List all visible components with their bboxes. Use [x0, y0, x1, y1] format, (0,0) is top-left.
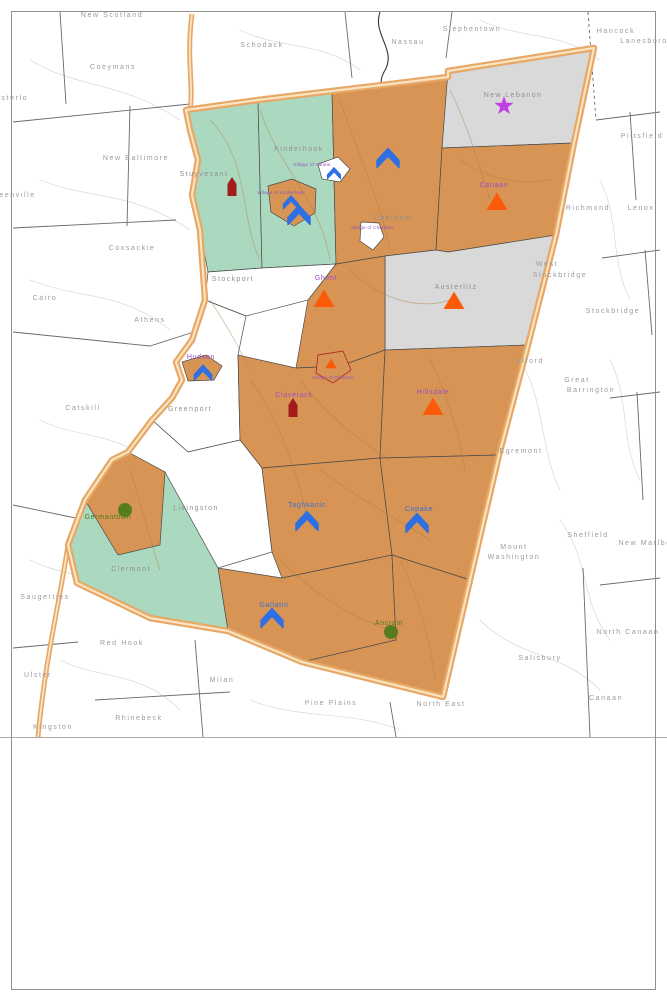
- label-claverack: Claverack: [275, 392, 312, 399]
- label-sheffield: Sheffield: [567, 532, 609, 539]
- label-pine-plains: Pine Plains: [305, 700, 358, 707]
- label-coxsackie: Coxsackie: [109, 245, 156, 252]
- label-greenport: Greenport: [168, 406, 212, 413]
- map-page: New Scotland Schodack Nassau Stephentown…: [0, 0, 667, 1000]
- label-west-stockbridge-2: Stockbridge: [533, 272, 588, 279]
- map-svg: New Scotland Schodack Nassau Stephentown…: [0, 0, 667, 737]
- town-chatham: [332, 77, 448, 264]
- label-chatham: Chatham: [374, 215, 412, 222]
- label-lanesboro: Lanesboro: [620, 38, 667, 45]
- label-great-barrington-2: Barrington: [567, 387, 615, 394]
- label-alford: Alford: [516, 358, 544, 365]
- label-milan: Milan: [210, 677, 235, 684]
- label-stephentown: Stephentown: [443, 26, 501, 33]
- label-copake: Copake: [405, 506, 433, 513]
- label-mount-washington-2: Washington: [488, 554, 541, 561]
- label-egremont: Egremont: [499, 448, 542, 455]
- label-kinderhook: Kinderhook: [274, 146, 323, 153]
- label-red-hook: Red Hook: [100, 640, 144, 647]
- label-ghent: Ghent: [315, 275, 338, 282]
- label-germantown: Germantown: [84, 514, 131, 521]
- label-lenox: Lenox: [627, 205, 654, 212]
- label-canaan: Canaan: [480, 182, 509, 189]
- label-stuyvesant: Stuyvesant: [180, 171, 229, 178]
- label-livingston: Livingston: [173, 505, 219, 512]
- label-new-scotland: New Scotland: [81, 12, 143, 19]
- label-stockbridge: Stockbridge: [586, 308, 641, 315]
- label-cairo: Cairo: [33, 295, 58, 302]
- label-ulster: Ulster: [24, 672, 52, 679]
- label-coeymans: Coeymans: [90, 64, 136, 71]
- label-kingston: Kingston: [33, 724, 73, 731]
- label-ancram: Ancram: [375, 620, 403, 627]
- label-athens: Athens: [134, 317, 165, 324]
- marker-designated-cec: [384, 625, 398, 639]
- label-new-baltimore: New Baltimore: [103, 155, 169, 162]
- label-north-canaan: North Canaan: [597, 629, 660, 636]
- label-village-valatie: Village of Valatie: [293, 162, 331, 167]
- label-saugerties: Saugerties: [20, 594, 69, 601]
- label-hancock: Hancock: [597, 28, 635, 35]
- label-new-lebanon: New Lebanon: [484, 92, 543, 99]
- label-village-chatham: Village of Chatham: [351, 225, 393, 230]
- label-hillsdale: Hillsdale: [417, 389, 450, 396]
- label-mount-washington: Mount: [500, 544, 527, 551]
- label-great-barrington: Great: [564, 377, 590, 384]
- label-pittsfield: Pittsfield: [621, 133, 663, 140]
- label-salisbury: Salisbury: [518, 655, 561, 662]
- label-taghkanic: Taghkanic: [288, 502, 326, 509]
- info-panel: Columbia County Climate Smart Communitie…: [0, 737, 667, 990]
- label-richmond: Richmond: [566, 205, 610, 212]
- label-canaan-ct: Canaan: [589, 695, 623, 702]
- label-stockport: Stockport: [212, 276, 254, 283]
- label-greenville: Greenville: [0, 192, 36, 199]
- label-village-philmont: Village of Philmont: [312, 375, 354, 380]
- town-claverack: [238, 350, 385, 468]
- label-westerlo: Westerlo: [0, 95, 28, 102]
- label-clermont: Clermont: [111, 566, 151, 573]
- label-new-marlborough: New Marlborough: [618, 540, 667, 547]
- label-rhinebeck: Rhinebeck: [115, 715, 162, 722]
- label-schodack: Schodack: [240, 42, 284, 49]
- label-gallatin: Gallatin: [259, 602, 288, 609]
- label-village-kinderhook: Village of Kinderhook: [257, 190, 305, 195]
- county-map: New Scotland Schodack Nassau Stephentown…: [0, 0, 667, 737]
- label-nassau: Nassau: [391, 39, 424, 46]
- label-north-east: North East: [416, 701, 465, 708]
- label-catskill: Catskill: [65, 405, 100, 412]
- label-west-stockbridge: West: [536, 261, 558, 268]
- label-hudson: Hudson: [187, 354, 215, 361]
- label-austerlitz: Austerlitz: [435, 284, 478, 291]
